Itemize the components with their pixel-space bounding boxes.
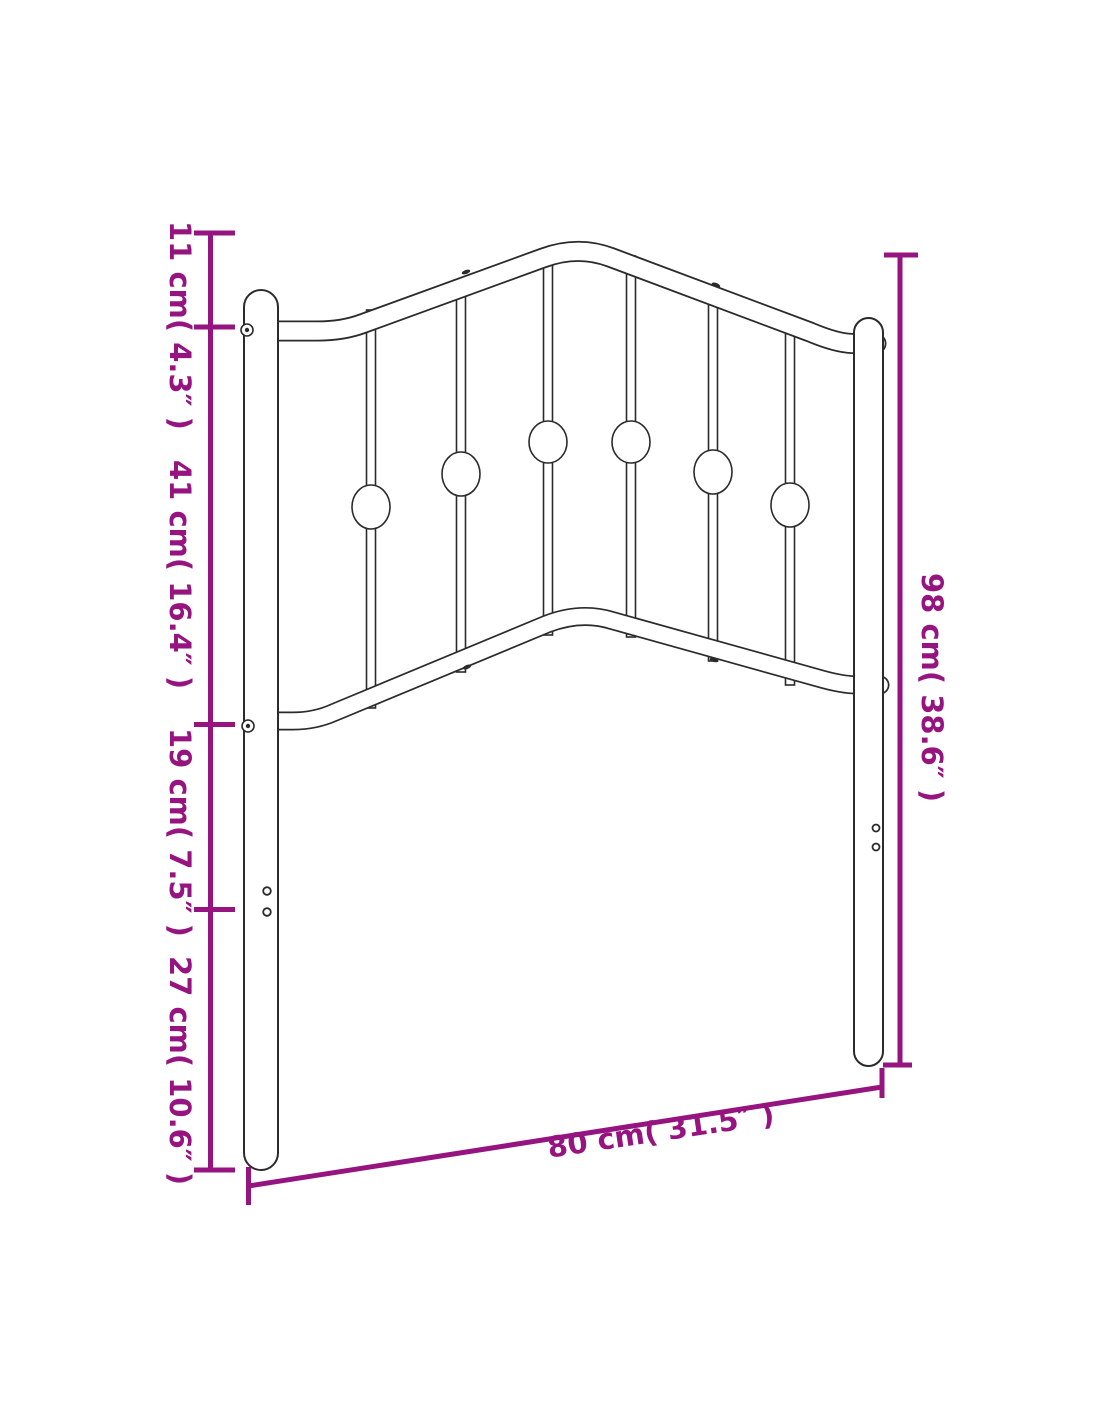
mount-hole-icon: [263, 887, 271, 895]
mount-hole-icon: [873, 844, 880, 851]
dimension-label-41cm: 41 cm( 16.4″ ): [163, 460, 197, 689]
top-rail-fill: [258, 251, 876, 343]
right-post: [854, 318, 883, 1066]
mount-hole-icon: [873, 825, 880, 832]
dimension-label-98cm: 98 cm( 38.6″ ): [915, 573, 949, 802]
dimension-label-11cm: 11 cm( 4.3″ ): [163, 221, 197, 430]
knob-6: [771, 483, 809, 527]
knob-1: [352, 485, 390, 529]
bolt-center-icon: [246, 724, 250, 728]
knob-2: [442, 452, 480, 496]
bolt-center-icon: [245, 328, 249, 332]
knob-4: [612, 421, 650, 463]
dimension-label-27cm: 27 cm( 10.6″ ): [163, 956, 197, 1185]
mount-hole-icon: [263, 908, 271, 916]
knob-5: [694, 450, 732, 494]
top-rail: [258, 251, 876, 343]
dimension-label-19cm: 19 cm( 7.5″ ): [163, 728, 197, 937]
knob-3: [529, 421, 567, 463]
baluster-knobs: [352, 421, 809, 529]
diagram-canvas: 11 cm( 4.3″ ) 41 cm( 16.4″ ) 19 cm( 7.5″…: [0, 0, 1100, 1422]
